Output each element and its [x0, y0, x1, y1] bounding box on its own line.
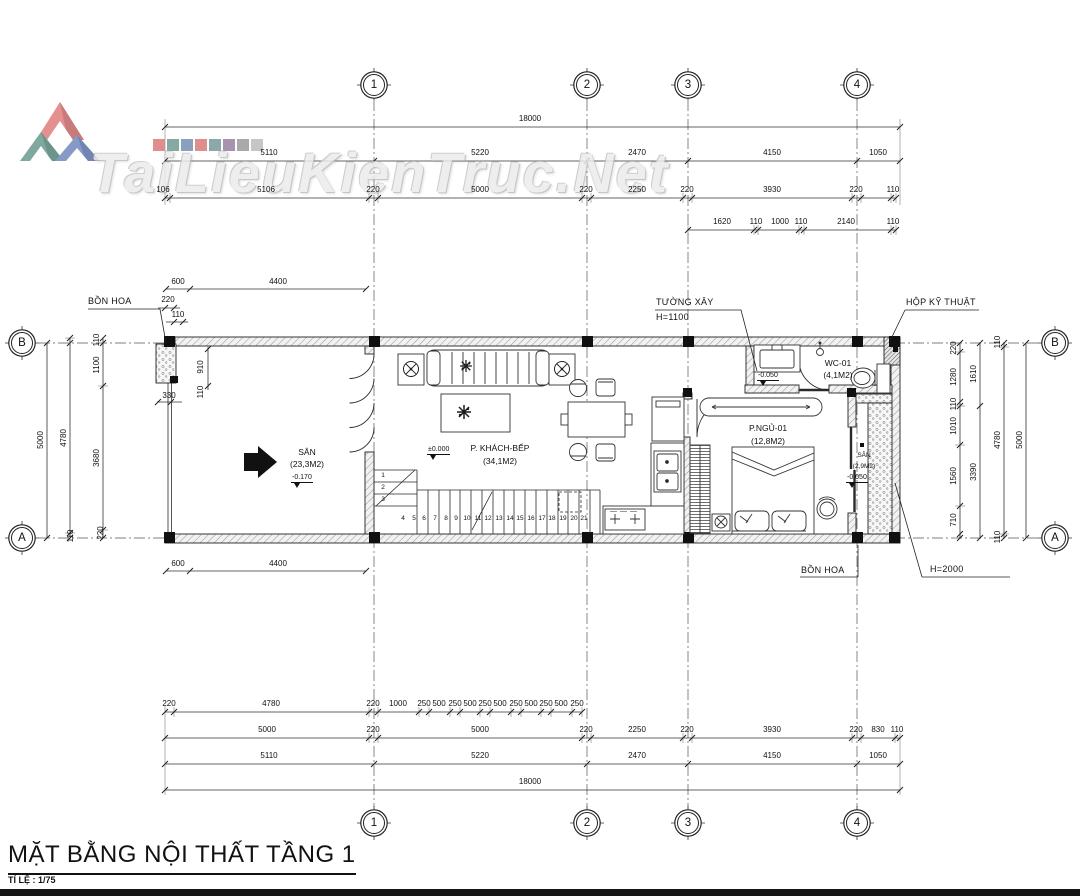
dim-label: 2250: [628, 186, 646, 194]
living-room-furniture: [398, 350, 575, 432]
dim-label: 220: [97, 526, 105, 539]
dim-label: 220: [366, 186, 379, 194]
dim-label: 220: [161, 296, 174, 304]
room-area-ngu: (12,8M2): [751, 437, 785, 446]
palette-swatch: [167, 139, 179, 151]
dining-table: [568, 402, 625, 437]
dim-label: 910: [197, 360, 205, 373]
stair-number: 18: [548, 516, 555, 523]
level-triangle-icon: [294, 483, 300, 488]
dim-label: 220: [579, 726, 592, 734]
palette-swatch: [181, 139, 193, 151]
dim-label: 220: [849, 186, 862, 194]
palette-swatch: [209, 139, 221, 151]
dim-label: 106: [156, 186, 169, 194]
room-label-khach-bep: P. KHÁCH-BẾP: [471, 444, 530, 453]
bottom-bar: [0, 889, 1080, 896]
level-triangle-icon: [430, 455, 436, 460]
dim-label: 4150: [763, 752, 781, 760]
dim-label: 1620: [713, 218, 731, 226]
dim-label: 5106: [257, 186, 275, 194]
level-marker: -0.170: [291, 474, 313, 483]
toilet-tank: [877, 364, 890, 393]
dim-label: 2470: [628, 149, 646, 157]
dim-label: 3680: [93, 449, 101, 467]
dim-label: 5000: [471, 186, 489, 194]
stair-number: 9: [454, 516, 458, 523]
dim-label: 220: [680, 726, 693, 734]
dim-label: 220: [950, 341, 958, 354]
dim-label: 2140: [837, 218, 855, 226]
dim-label: 110: [93, 334, 101, 347]
dim-label: 4780: [60, 429, 68, 447]
dim-label: 220: [366, 700, 379, 708]
grid-bubble-4: 4: [846, 812, 868, 834]
stair-number: 13: [495, 516, 502, 523]
entry-arrow-icon: [244, 446, 277, 478]
stair-number: 11: [475, 516, 482, 523]
palette-swatch: [223, 139, 235, 151]
stair-number: 4: [401, 516, 405, 523]
fence-line: [168, 383, 172, 534]
dim-label: 5220: [471, 149, 489, 157]
stair-number: 16: [527, 516, 534, 523]
dim-label: 3930: [763, 186, 781, 194]
grid-bubble-3: 3: [677, 812, 699, 834]
annotation-bon-hoa-top: BỒN HOA: [88, 297, 132, 306]
dim-label: 4400: [269, 278, 287, 286]
stair-number: 15: [516, 516, 523, 523]
dim-label: 500: [493, 700, 506, 708]
dim-label: 220: [579, 186, 592, 194]
level-marker: ±0.000: [427, 446, 450, 455]
dim-label: 250: [539, 700, 552, 708]
stair-number: 8: [444, 516, 448, 523]
stair-number: 12: [484, 516, 491, 523]
dim-label: 110: [891, 726, 904, 734]
sofa: [427, 350, 549, 386]
dim-label: 18000: [519, 778, 541, 786]
stair-number: 1: [381, 473, 385, 480]
dining-set: [561, 379, 632, 461]
stove: [605, 509, 645, 530]
dim-label: 1010: [950, 417, 958, 435]
stair-number: 19: [559, 516, 566, 523]
palette-swatch: [195, 139, 207, 151]
stair-number: 17: [538, 516, 545, 523]
dim-label: 830: [871, 726, 884, 734]
pillow: [772, 511, 806, 531]
floor-plan-page: TaiLieuKienTruc.Net 1 2 3 4 1 2 3 4 B A …: [0, 0, 1080, 896]
dim-label: 250: [448, 700, 461, 708]
dim-label: 110: [750, 218, 763, 226]
dim-label: 500: [432, 700, 445, 708]
dim-label: 110: [887, 186, 900, 194]
annotation-hop-ky-thuat: HỘP KỸ THUẬT: [906, 298, 976, 307]
dim-label: 1050: [869, 149, 887, 157]
dim-label: 3390: [970, 463, 978, 481]
dim-label: 1050: [869, 752, 887, 760]
annotation-tuong-xay: TƯỜNG XÂY: [656, 298, 714, 307]
dim-label: 3930: [763, 726, 781, 734]
annotation-h2000: H=2000: [930, 565, 964, 574]
dim-label: 110: [994, 531, 1002, 544]
dim-label: 500: [524, 700, 537, 708]
wall-grid1-bottom: [365, 452, 374, 534]
grid-bubble-2: 2: [576, 812, 598, 834]
dim-label: 5000: [258, 726, 276, 734]
grid-bubble-1: 1: [363, 812, 385, 834]
dim-label: 4400: [269, 560, 287, 568]
dim-label: 600: [171, 560, 184, 568]
dim-label: 1280: [950, 368, 958, 386]
dim-label: 1560: [950, 467, 958, 485]
stair-number: 6: [422, 516, 426, 523]
dim-label: 5220: [471, 752, 489, 760]
folding-door: [350, 354, 375, 452]
stair-number: 10: [463, 516, 470, 523]
stair-number: 21: [580, 516, 587, 523]
washbasin: [760, 350, 794, 368]
level-marker: -0.050: [846, 474, 868, 483]
dim-label: 330: [162, 392, 175, 400]
dim-label: 500: [554, 700, 567, 708]
staircase: [374, 470, 600, 534]
dim-label: 110: [172, 311, 185, 319]
stair-number: 7: [433, 516, 437, 523]
dim-label: 5000: [471, 726, 489, 734]
grid-bubble-2: 2: [576, 74, 598, 96]
scale-label: TỈ LỆ : 1/75: [8, 875, 56, 885]
dim-label: 220: [680, 186, 693, 194]
grid-bubble-4: 4: [846, 74, 868, 96]
palette-swatch: [153, 139, 165, 151]
stair-number: 14: [506, 516, 513, 523]
dim-label: 5110: [260, 752, 277, 760]
room-label-san2: SÂN: [857, 453, 870, 460]
room-area-san: (23,3M2): [290, 460, 324, 469]
dim-label: 4780: [994, 431, 1002, 449]
dim-label: 18000: [519, 115, 541, 123]
stair-number: 3: [381, 497, 385, 504]
chair: [570, 380, 587, 397]
dim-label: 220: [849, 726, 862, 734]
dim-label: 4150: [763, 149, 781, 157]
dim-label: 710: [950, 513, 958, 526]
dim-label: 600: [171, 278, 184, 286]
dim-label: 250: [509, 700, 522, 708]
grid-bubble-A: A: [11, 527, 33, 549]
dim-label: 110: [795, 218, 808, 226]
dim-label: 1100: [93, 356, 101, 373]
grid-bubble-3: 3: [677, 74, 699, 96]
dim-label: 5000: [37, 431, 45, 449]
room-label-san: SÂN: [298, 448, 315, 457]
grid-bubble-A: A: [1044, 527, 1066, 549]
bedroom-furniture: [690, 398, 837, 534]
level-triangle-icon: [760, 381, 766, 386]
grid-bubble-1: 1: [363, 74, 385, 96]
dim-label: 1000: [771, 218, 789, 226]
annotation-bon-hoa-bottom: BỒN HOA: [801, 566, 845, 575]
grid-bubble-B: B: [1044, 332, 1066, 354]
dim-label: 2470: [628, 752, 646, 760]
annotation-tuong-xay-h: H=1100: [656, 313, 689, 322]
stair-number: 20: [570, 516, 577, 523]
grid-bubble-B: B: [11, 332, 33, 354]
room-label-wc: WC-01: [825, 359, 851, 368]
drain-icon: [817, 349, 824, 356]
dim-label: 250: [478, 700, 491, 708]
dim-label: 250: [417, 700, 430, 708]
dim-label: 5000: [1016, 431, 1024, 449]
level-marker: -0.050: [757, 372, 779, 381]
dim-label: 500: [463, 700, 476, 708]
dim-label: 1000: [389, 700, 407, 708]
dim-label: 110: [994, 336, 1002, 349]
room-area-wc: (4,1M2): [823, 371, 852, 380]
room-area-san2: (2,9M2): [853, 464, 875, 471]
room-area-khach-bep: (34,1M2): [483, 457, 517, 466]
dim-label: 250: [570, 700, 583, 708]
dim-label: 220: [162, 700, 175, 708]
wall-grid1-top: [365, 346, 374, 354]
dim-label: 4780: [262, 700, 280, 708]
wall-faces: [168, 383, 172, 534]
dim-label: 5110: [260, 149, 277, 157]
room-label-ngu: P.NGỦ-01: [749, 424, 787, 433]
dim-label: 110: [67, 530, 75, 543]
wall-grid3: [684, 437, 690, 534]
dim-label: 110: [197, 386, 205, 399]
palette-swatch: [237, 139, 249, 151]
dim-label: 2250: [628, 726, 646, 734]
stair-number: 5: [412, 516, 416, 523]
chair: [570, 444, 587, 461]
dim-label: 110: [887, 218, 900, 226]
floor-plan-drawing: [0, 0, 1080, 896]
dim-label: 220: [366, 726, 379, 734]
dim-label: 110: [950, 398, 958, 411]
coffee-table: [441, 394, 510, 432]
page-title: MẶT BẰNG NỘI THẤT TẦNG 1: [8, 841, 356, 875]
level-triangle-icon: [849, 483, 855, 488]
stair-number: 2: [381, 485, 385, 492]
dim-label: 1610: [970, 365, 978, 383]
